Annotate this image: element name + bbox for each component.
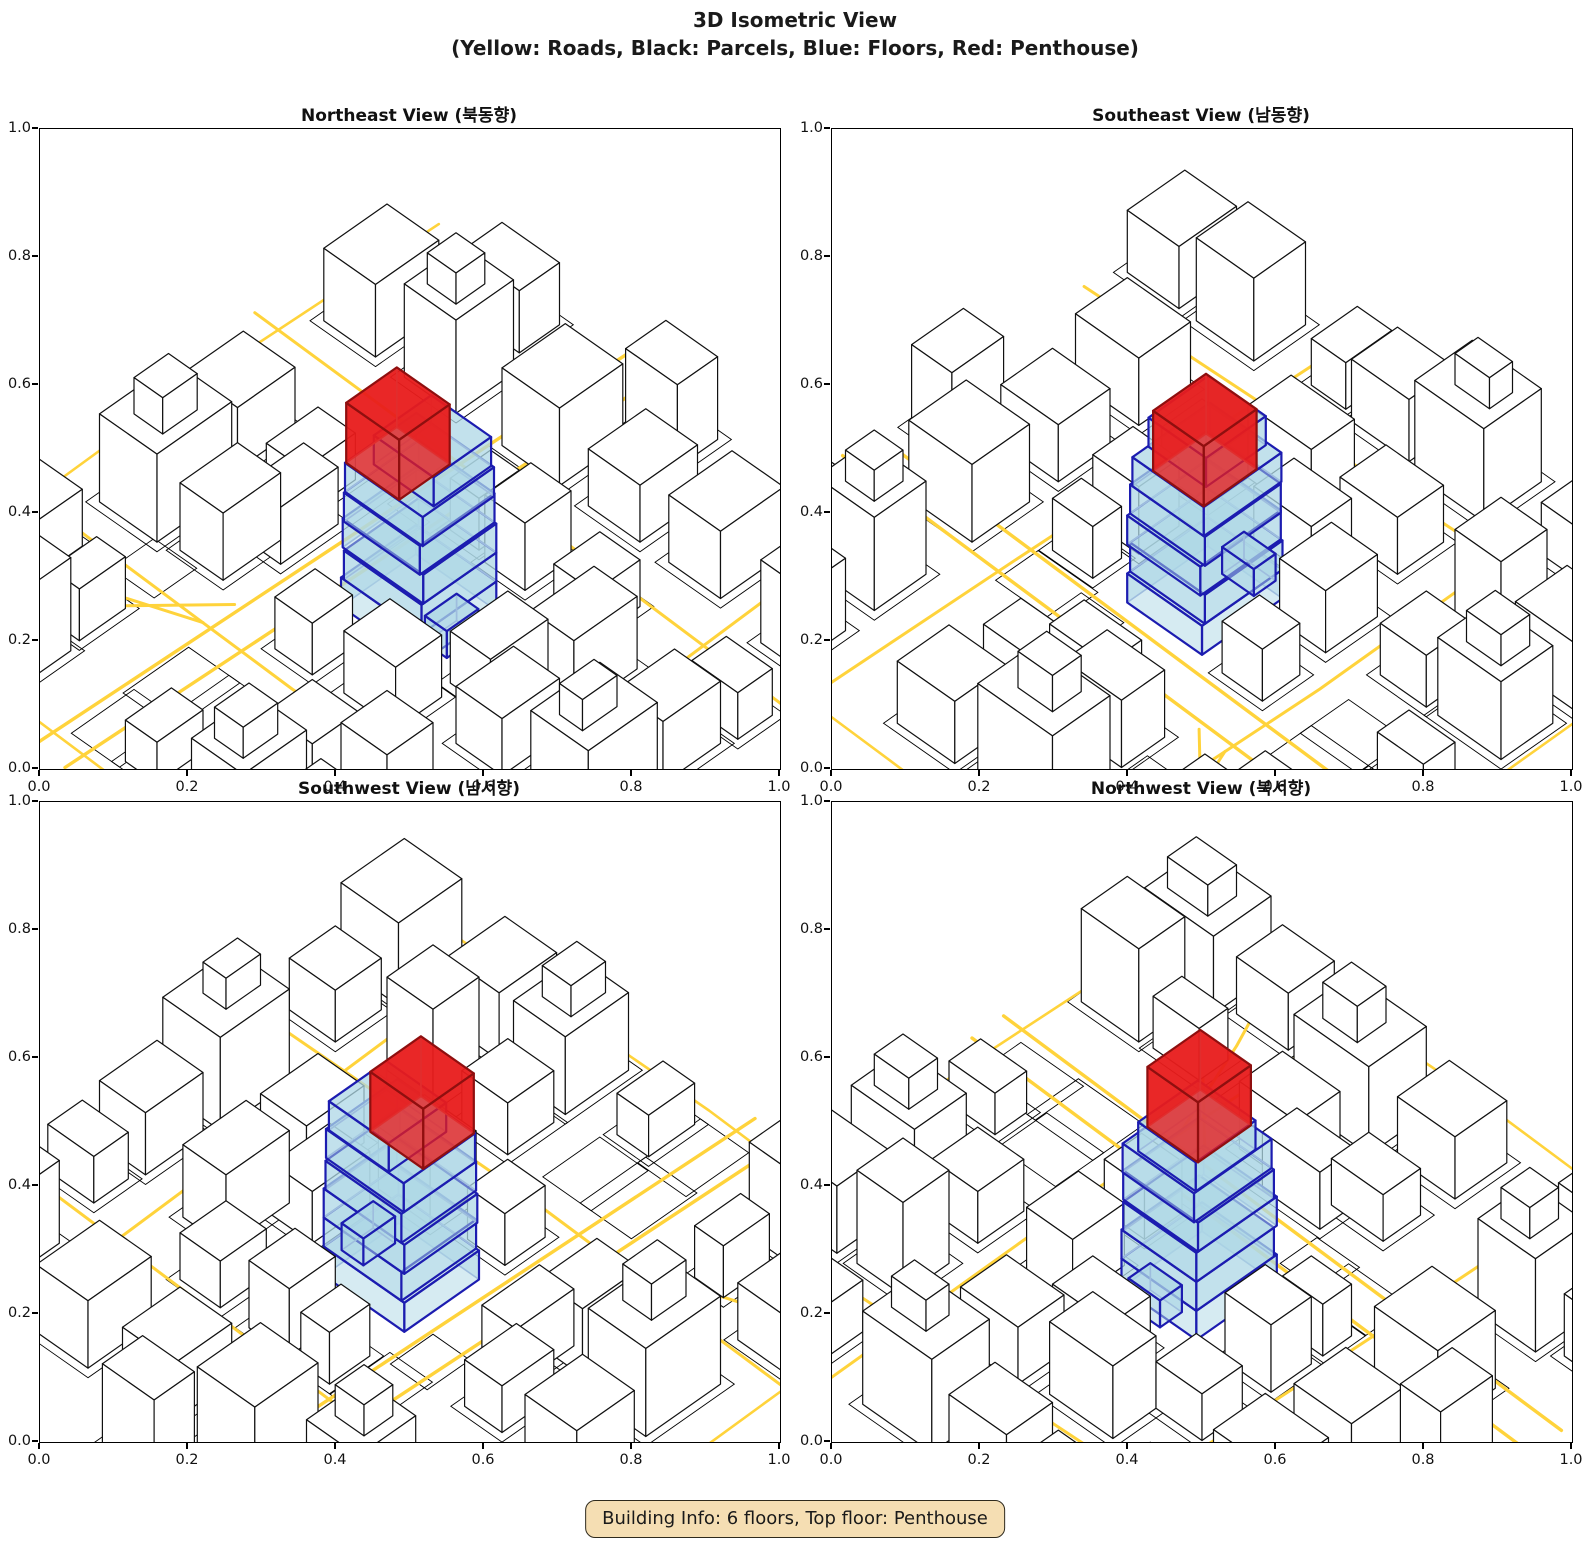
- y-tick-mark: [824, 800, 830, 802]
- y-tick-label: 0.6: [783, 375, 823, 393]
- subplot-title: Northeast View (북동향): [39, 101, 779, 126]
- y-tick-mark: [32, 1184, 38, 1186]
- y-tick-label: 0.6: [0, 1048, 31, 1066]
- y-tick-label: 0.2: [783, 631, 823, 649]
- x-tick-label: 0.2: [959, 1451, 999, 1469]
- subplot-title: Southwest View (남서향): [39, 774, 779, 799]
- y-tick-label: 1.0: [0, 792, 31, 810]
- x-tick-label: 0.0: [811, 1451, 851, 1469]
- x-tick-label: 0.4: [1107, 1451, 1147, 1469]
- y-tick-mark: [824, 639, 830, 641]
- x-tick-mark: [830, 1443, 832, 1449]
- building-face: [761, 560, 781, 679]
- y-tick-mark: [824, 127, 830, 129]
- y-tick-mark: [824, 1056, 830, 1058]
- y-tick-label: 0.8: [0, 920, 31, 938]
- y-tick-mark: [32, 383, 38, 385]
- y-tick-label: 0.0: [783, 759, 823, 777]
- y-tick-mark: [824, 1440, 830, 1442]
- x-tick-label: 0.6: [1255, 1451, 1295, 1469]
- subplot-northwest: Northwest View (북서향) 0.00.20.40.60.81.00…: [831, 801, 1571, 1441]
- y-tick-label: 0.6: [0, 375, 31, 393]
- y-tick-mark: [32, 767, 38, 769]
- buildings-layer: [39, 839, 781, 1444]
- scene-canvas: [39, 128, 781, 770]
- x-tick-mark: [1126, 1443, 1128, 1449]
- y-tick-mark: [824, 928, 830, 930]
- y-tick-label: 0.4: [783, 1176, 823, 1194]
- y-tick-label: 1.0: [0, 119, 31, 137]
- subplot-southeast: Southeast View (남동향) 0.00.20.40.60.81.00…: [831, 128, 1571, 768]
- y-tick-label: 0.8: [0, 247, 31, 265]
- y-tick-label: 0.2: [0, 631, 31, 649]
- x-tick-label: 0.2: [167, 1451, 207, 1469]
- y-tick-mark: [824, 1184, 830, 1186]
- y-tick-label: 0.2: [0, 1304, 31, 1322]
- figure-canvas: 3D Isometric View (Yellow: Roads, Black:…: [0, 0, 1590, 1560]
- subplot-title: Southeast View (남동향): [831, 101, 1571, 126]
- x-tick-mark: [1422, 1443, 1424, 1449]
- figure-title-line2: (Yellow: Roads, Black: Parcels, Blue: Fl…: [0, 34, 1590, 62]
- building-info-badge: Building Info: 6 floors, Top floor: Pent…: [585, 1500, 1005, 1538]
- building-box: [1099, 1442, 1208, 1443]
- y-tick-mark: [32, 1440, 38, 1442]
- x-tick-label: 0.8: [611, 1451, 651, 1469]
- x-tick-label: 0.4: [315, 1451, 355, 1469]
- x-tick-label: 0.6: [463, 1451, 503, 1469]
- scene-canvas: [831, 128, 1573, 770]
- y-tick-mark: [32, 800, 38, 802]
- x-tick-mark: [1274, 1443, 1276, 1449]
- y-tick-label: 0.2: [783, 1304, 823, 1322]
- y-tick-mark: [824, 1312, 830, 1314]
- y-tick-mark: [824, 383, 830, 385]
- y-tick-label: 0.0: [783, 1432, 823, 1450]
- x-tick-label: 0.0: [19, 1451, 59, 1469]
- y-tick-label: 1.0: [783, 792, 823, 810]
- y-tick-mark: [32, 928, 38, 930]
- building-box: [1176, 754, 1251, 770]
- building-box: [831, 1248, 863, 1364]
- y-tick-label: 0.8: [783, 920, 823, 938]
- y-tick-mark: [32, 255, 38, 257]
- x-tick-label: 0.8: [1403, 1451, 1443, 1469]
- y-tick-mark: [32, 1056, 38, 1058]
- x-tick-mark: [1570, 1443, 1572, 1449]
- y-tick-mark: [824, 511, 830, 513]
- x-tick-label: 1.0: [759, 1451, 799, 1469]
- y-tick-label: 0.8: [783, 247, 823, 265]
- x-tick-mark: [482, 1443, 484, 1449]
- y-tick-mark: [32, 1312, 38, 1314]
- figure-title-line1: 3D Isometric View: [0, 6, 1590, 34]
- y-tick-mark: [824, 255, 830, 257]
- y-tick-mark: [824, 767, 830, 769]
- y-tick-label: 1.0: [783, 119, 823, 137]
- figure-title: 3D Isometric View (Yellow: Roads, Black:…: [0, 6, 1590, 62]
- buildings-layer: [831, 170, 1573, 770]
- x-tick-mark: [38, 1443, 40, 1449]
- x-tick-mark: [778, 1443, 780, 1449]
- y-tick-mark: [32, 511, 38, 513]
- scene-canvas: [831, 801, 1573, 1443]
- scene-canvas: [39, 801, 781, 1443]
- x-tick-mark: [186, 1443, 188, 1449]
- y-tick-label: 0.6: [783, 1048, 823, 1066]
- buildings-layer: [831, 837, 1573, 1443]
- x-tick-mark: [630, 1443, 632, 1449]
- y-tick-label: 0.0: [0, 1432, 31, 1450]
- x-tick-mark: [978, 1443, 980, 1449]
- x-tick-mark: [334, 1443, 336, 1449]
- parcel-outline: [390, 1334, 469, 1390]
- building-face: [1176, 754, 1251, 770]
- y-tick-mark: [32, 127, 38, 129]
- building-face: [39, 558, 71, 691]
- subplot-southwest: Southwest View (남서향) 0.00.20.40.60.81.00…: [39, 801, 779, 1441]
- y-tick-mark: [32, 639, 38, 641]
- y-tick-label: 0.4: [783, 503, 823, 521]
- buildings-layer: [39, 204, 781, 770]
- x-tick-label: 1.0: [1551, 1451, 1590, 1469]
- y-tick-label: 0.4: [0, 1176, 31, 1194]
- building-face: [831, 558, 846, 667]
- subplot-title: Northwest View (북서향): [831, 774, 1571, 799]
- y-tick-label: 0.0: [0, 759, 31, 777]
- y-tick-label: 0.4: [0, 503, 31, 521]
- subplot-northeast: Northeast View (북동향) 0.00.20.40.60.81.00…: [39, 128, 779, 768]
- building-face: [1099, 1442, 1208, 1443]
